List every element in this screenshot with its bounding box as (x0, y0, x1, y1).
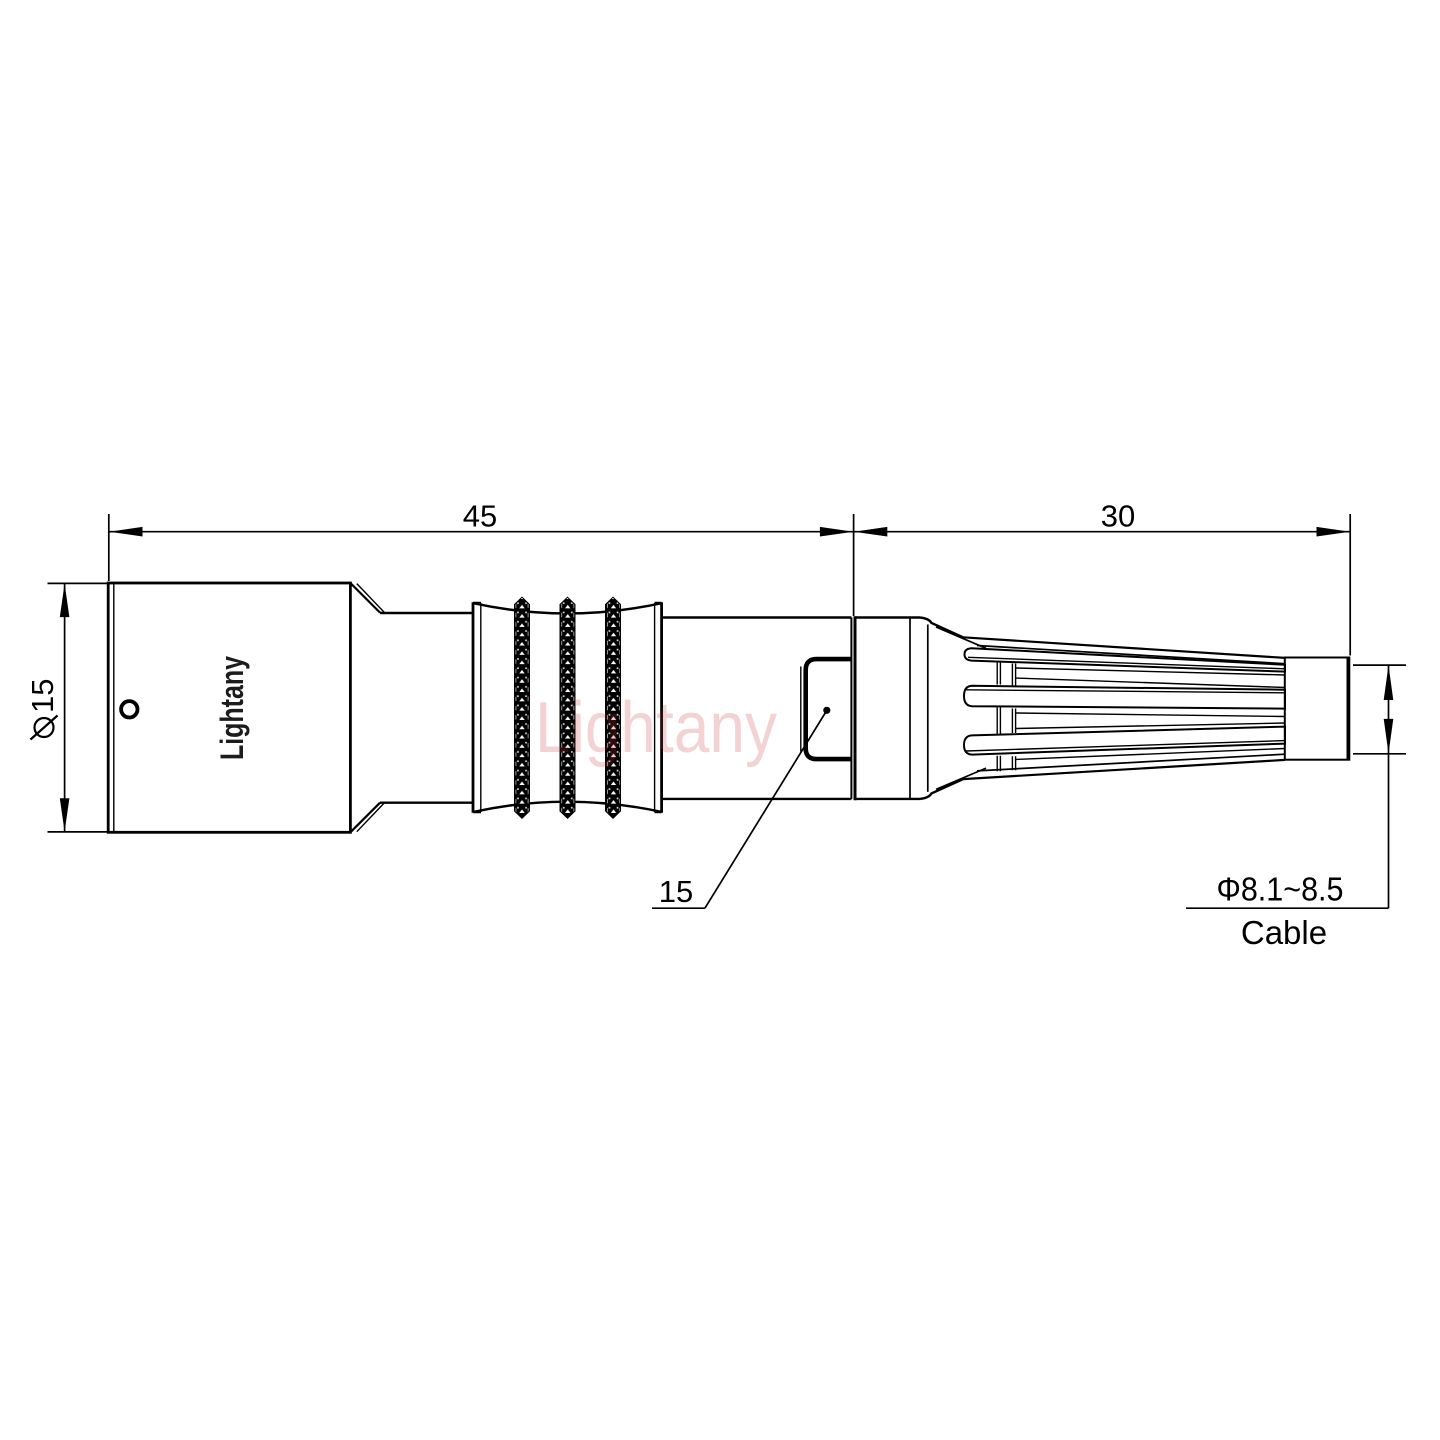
svg-text:45: 45 (463, 499, 497, 534)
svg-text:Lightany: Lightany (214, 656, 250, 760)
svg-text:15: 15 (25, 679, 60, 713)
svg-text:Cable: Cable (1241, 914, 1327, 951)
svg-text:15: 15 (659, 874, 693, 909)
svg-text:Φ8.1~8.5: Φ8.1~8.5 (1217, 871, 1344, 908)
svg-text:30: 30 (1101, 499, 1135, 534)
svg-text:Lightany: Lightany (535, 688, 777, 768)
